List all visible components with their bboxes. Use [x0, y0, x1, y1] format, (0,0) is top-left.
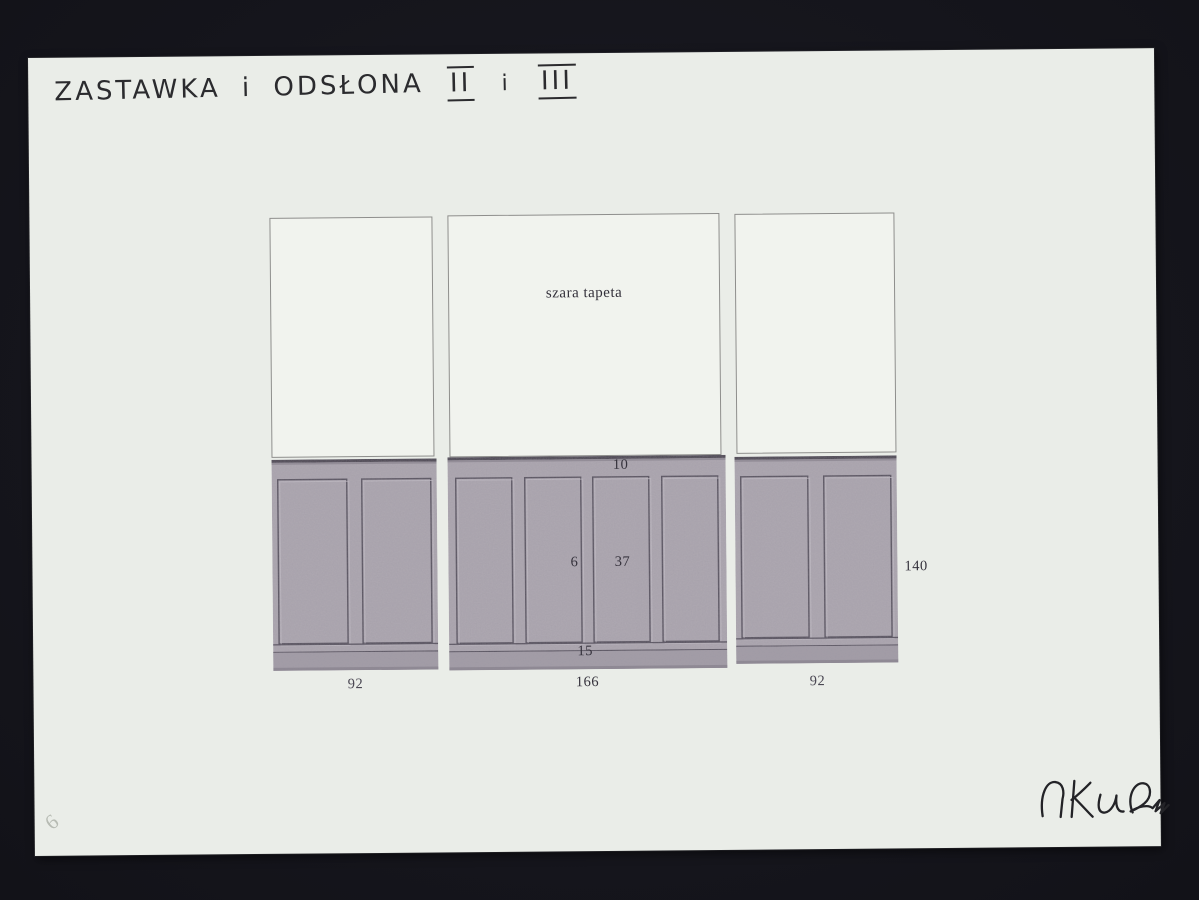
- left-wainscot-drawing: [272, 458, 439, 670]
- title-numeral-III: III: [538, 64, 577, 100]
- title-conjunction: i: [501, 71, 511, 96]
- signature-mark: [1034, 770, 1175, 831]
- right-width-dimension: 92: [803, 673, 831, 690]
- base-dimension: 15: [571, 643, 599, 660]
- wallpaper-label: szara tapeta: [448, 284, 720, 303]
- height-dimension: 140: [904, 558, 940, 575]
- center-width-dimension: 166: [573, 674, 601, 691]
- right-wainscot-drawing: [735, 455, 899, 663]
- right-wallpaper-area: [734, 212, 896, 453]
- drawing-title: ZASTAWKA i ODSŁONA II i III: [54, 66, 578, 108]
- corner-page-mark: 6: [40, 809, 64, 835]
- center-wainscot-drawing: [448, 455, 728, 670]
- title-text: ZASTAWKA i ODSŁONA: [54, 69, 424, 107]
- center-wallpaper-area: [447, 213, 721, 457]
- top-rail-dimension: 10: [606, 457, 636, 474]
- stile-dimension: 6: [564, 554, 584, 571]
- paper-sheet: ZASTAWKA i ODSŁONA II i III: [28, 48, 1161, 856]
- left-wallpaper-area: [269, 216, 434, 457]
- title-numeral-II: II: [447, 66, 475, 102]
- panel-width-dimension: 37: [608, 554, 636, 571]
- left-width-dimension: 92: [341, 676, 369, 693]
- scanned-sheet-background: ZASTAWKA i ODSŁONA II i III: [0, 0, 1199, 900]
